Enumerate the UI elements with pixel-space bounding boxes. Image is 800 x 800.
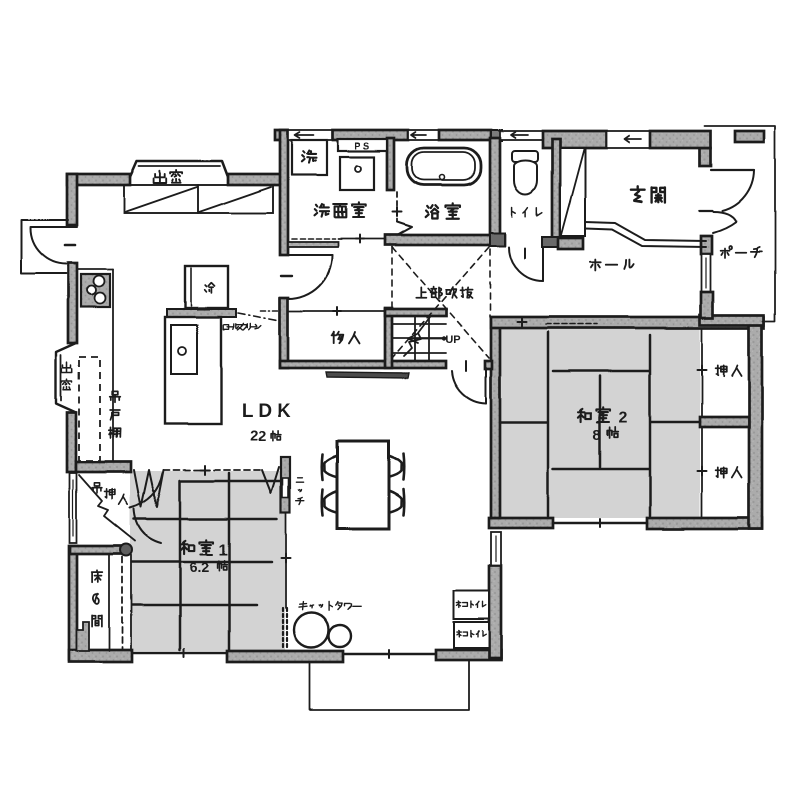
- svg-text:22: 22: [250, 428, 267, 445]
- svg-text:2: 2: [619, 410, 628, 427]
- svg-text:8: 8: [593, 427, 601, 444]
- svg-text:6.2: 6.2: [189, 559, 209, 575]
- svg-text:UP: UP: [445, 334, 460, 346]
- svg-text:1: 1: [219, 542, 228, 559]
- svg-text:P S: P S: [355, 141, 369, 151]
- svg-text:L D K: L D K: [241, 401, 291, 422]
